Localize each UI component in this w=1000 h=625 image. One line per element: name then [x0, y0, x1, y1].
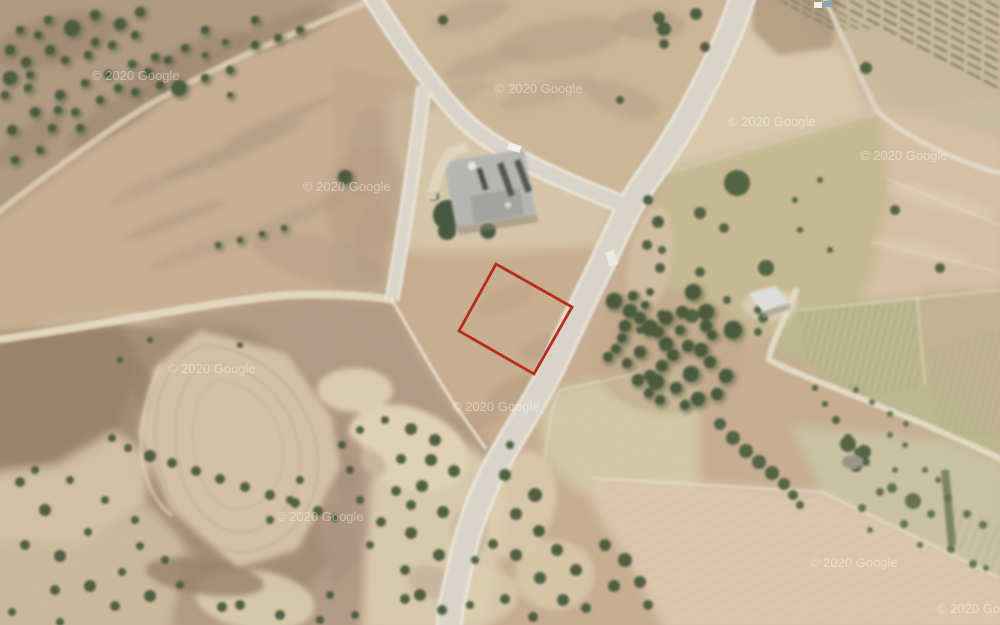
svg-text:© 2020 Google: © 2020 Google [168, 361, 256, 376]
svg-text:© 2020 Google: © 2020 Google [860, 148, 948, 163]
svg-text:© 2020 Google: © 2020 Google [452, 399, 540, 414]
svg-text:© 2020 Google: © 2020 Google [937, 601, 1000, 616]
svg-text:© 2020 Google: © 2020 Google [810, 555, 898, 570]
svg-text:© 2020 Google: © 2020 Google [92, 68, 180, 83]
svg-text:© 2020 Google: © 2020 Google [276, 509, 364, 524]
svg-text:© 2020 Google: © 2020 Google [495, 81, 583, 96]
svg-text:© 2020 Google: © 2020 Google [303, 179, 391, 194]
svg-text:© 2020 Google: © 2020 Google [728, 114, 816, 129]
